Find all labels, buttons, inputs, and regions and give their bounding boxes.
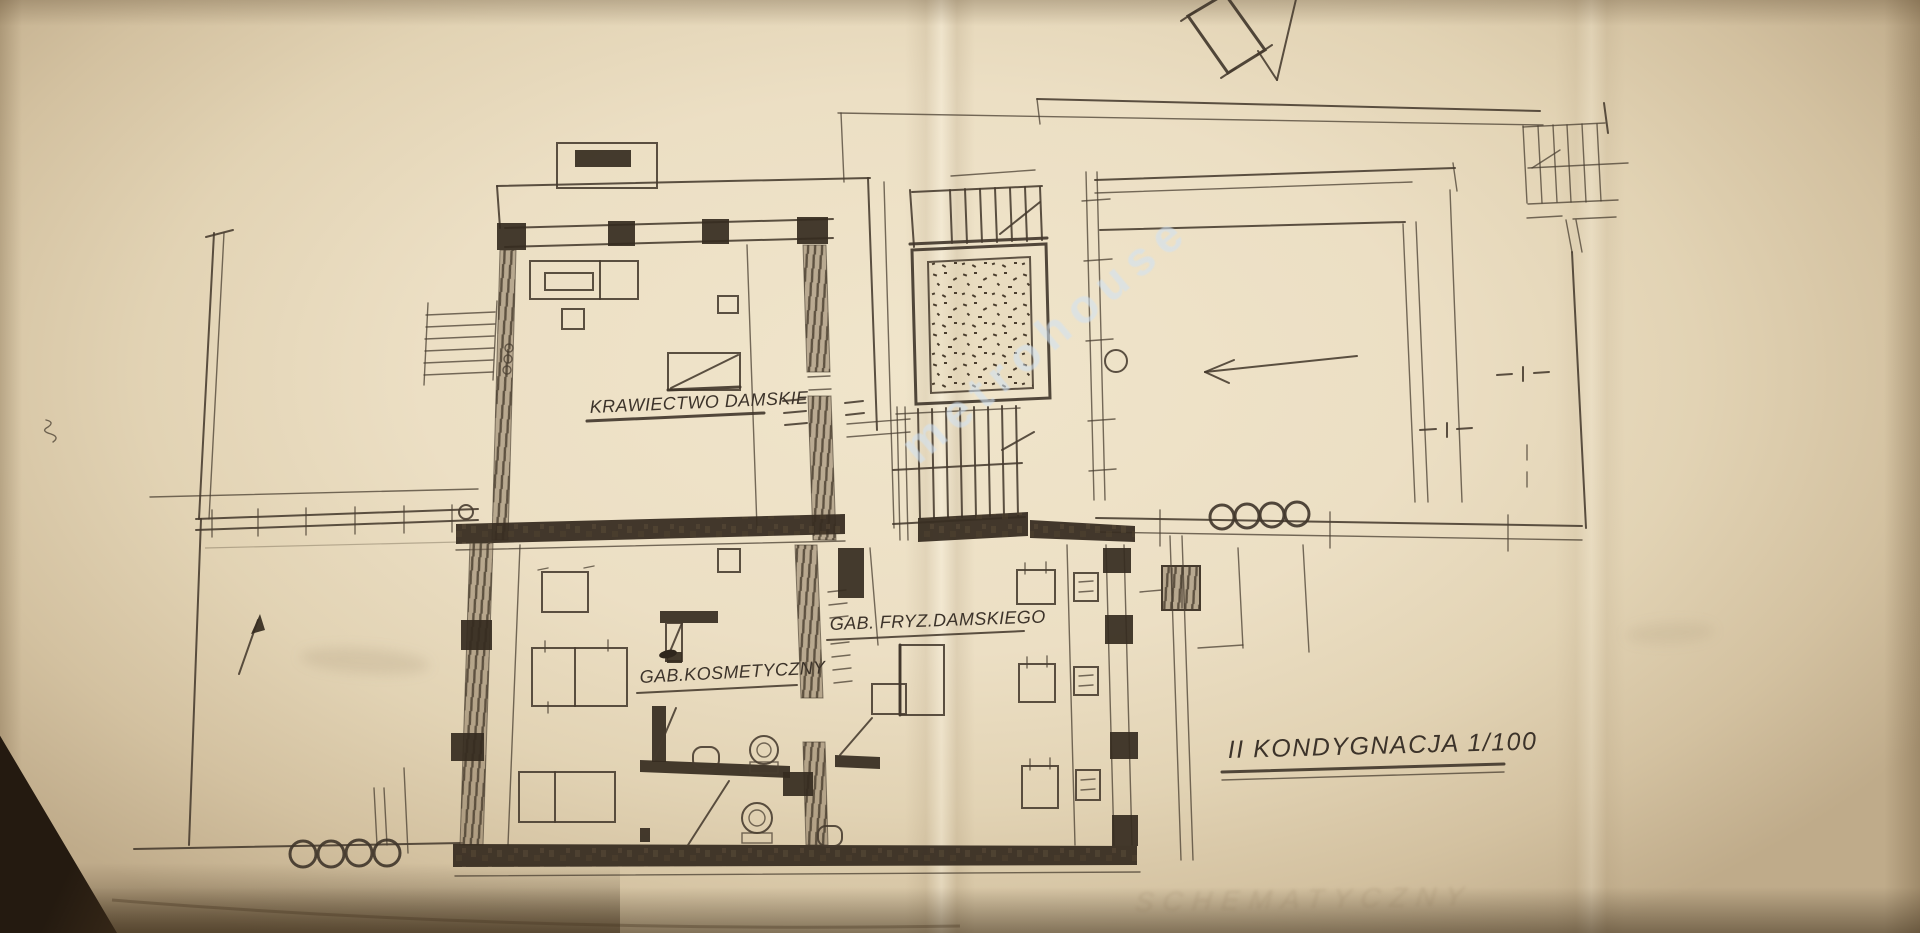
top-right-sketch (1181, 0, 1297, 80)
annotations: KRAWIECTWO DAMSKIE GAB. FRYZ.DAMSKIEGO G… (587, 387, 1538, 780)
side-stair (424, 301, 497, 385)
upper-building (424, 143, 910, 540)
stool (718, 296, 738, 313)
floor-plan-drawing: KRAWIECTWO DAMSKIE GAB. FRYZ.DAMSKIEGO G… (0, 0, 1920, 933)
duct-box (1162, 566, 1200, 610)
treatment-chair (542, 572, 588, 612)
room-label-tailoring: KRAWIECTWO DAMSKIE (589, 387, 809, 417)
far-right-staircase (1523, 123, 1628, 252)
stool (562, 309, 584, 329)
room-label-hairdresser: GAB. FRYZ.DAMSKIEGO (829, 606, 1046, 634)
treatment-table (532, 648, 627, 706)
floor-title: II KONDYGNACJA 1/100 (1227, 727, 1537, 764)
stool (718, 549, 740, 572)
lower-building (451, 536, 1193, 876)
hairdresser-stations (1017, 562, 1100, 808)
central-staircase (893, 170, 1127, 542)
work-table (530, 261, 638, 299)
table (519, 772, 615, 822)
washbasin (750, 736, 778, 764)
margin-mark (45, 420, 56, 442)
washbasin (742, 803, 772, 833)
photo-of-floor-plan: KRAWIECTWO DAMSKIE GAB. FRYZ.DAMSKIEGO G… (0, 0, 1920, 933)
bearing-wall (456, 514, 845, 544)
